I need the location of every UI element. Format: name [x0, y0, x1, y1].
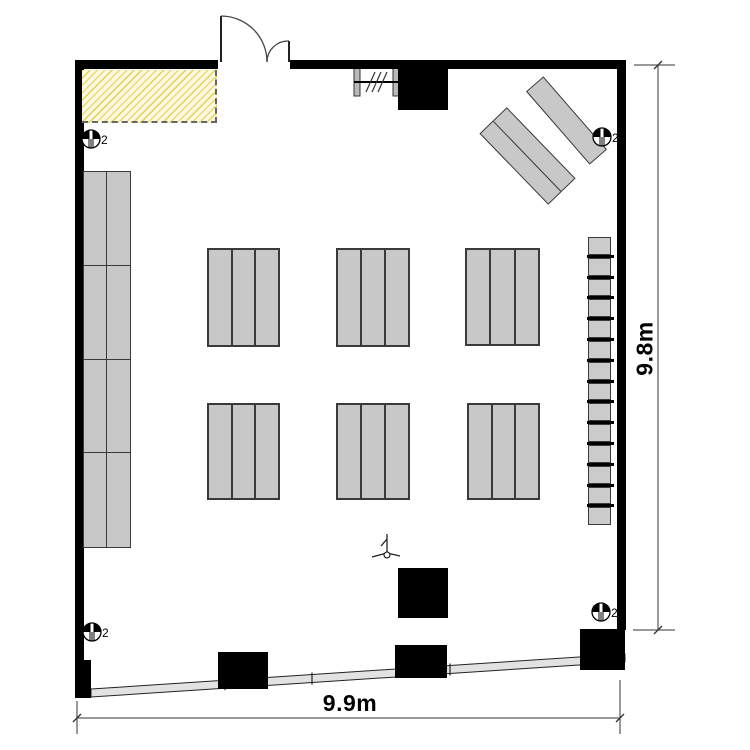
- height-dimension-label: 9.8m: [632, 304, 659, 394]
- fixture-count-label: 2: [101, 133, 108, 147]
- stand-symbol-flag: [381, 539, 387, 546]
- light-fixture-symbol: 2: [83, 623, 109, 641]
- light-fixture-symbol: 2: [592, 603, 618, 621]
- light-fixture-symbol: 2: [593, 128, 619, 146]
- light-fixture-symbol: 2: [82, 130, 108, 148]
- width-dimension-label: 9.9m: [305, 690, 395, 717]
- fixture-count-label: 2: [611, 606, 618, 620]
- floor-plan: 2222 9.9m 9.8m: [0, 0, 750, 750]
- fixture-count-label: 2: [102, 626, 109, 640]
- fixture-count-label: 2: [612, 131, 619, 145]
- stand-symbol-foot: [384, 552, 390, 558]
